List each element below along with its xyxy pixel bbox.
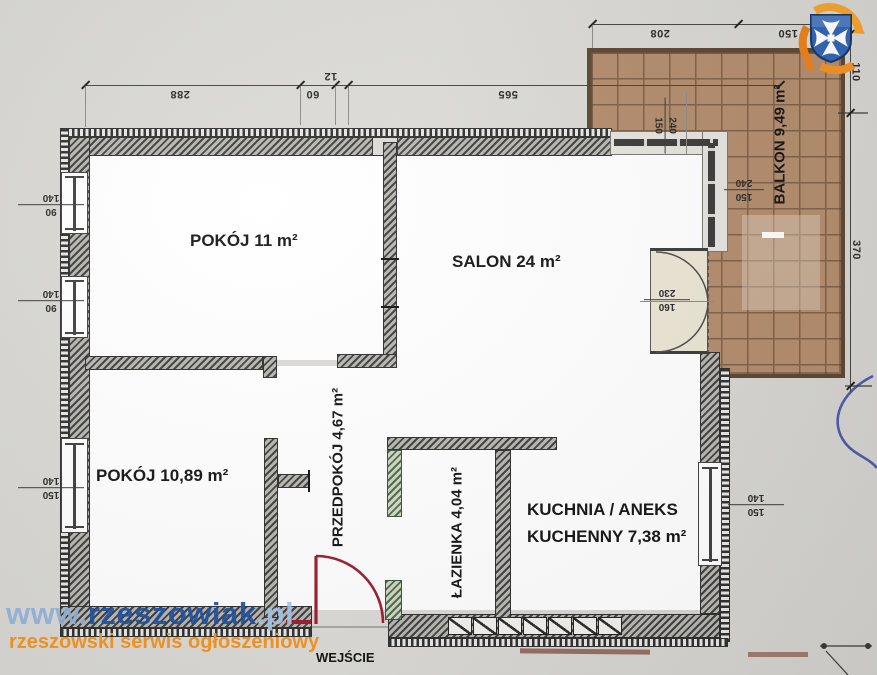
watermark-tld: .pl [257,596,295,631]
room-label-lazienka: ŁAZIENKA 4,04 m² [449,458,466,608]
dim-label-288: 288 [170,88,190,100]
window-dim-pokoj2: 150140 [18,475,84,500]
entrance-label: WEJŚCIE [316,650,375,665]
room-label-balkon: BALKON 9,49 m² [772,75,789,215]
pen-mark [838,376,877,468]
window-dim-salon-top: 240150 [652,98,677,154]
floor-plan-photo: 288 60 12 565 208 150 110 370 90140 9014… [0,0,877,675]
watermark-url: www.rzeszowiak.pl [6,596,294,632]
dim-lines-bottom-right [820,113,872,675]
room-label-przedpokoj: PRZEDPOKÓJ 4,67 m² [330,378,347,558]
rzeszowiak-logo [795,2,867,74]
balcony-door-dim: 160230 [644,287,690,312]
dim-label-370: 370 [850,240,862,260]
room-label-kuchnia: KUCHNIA / ANEKS KUCHENNY 7,38 m² [527,496,686,550]
dim-extension [85,87,86,127]
dim-label-565: 565 [498,88,518,100]
window-dim-kitchen: 150140 [728,492,784,517]
window-dim-salon-side: 150240 [724,177,764,202]
entrance-door [286,556,383,624]
watermark-name: rzeszowiak [88,596,257,631]
dim-extension [348,87,349,125]
dim-extension [335,87,336,125]
room-label-pokoj2: POKÓJ 10,89 m² [96,466,228,486]
plan-overlay [0,0,877,675]
dim-label-208: 208 [650,27,670,39]
dim-extension [592,26,593,48]
dim-line-top [85,85,780,86]
dim-label-60: 60 [306,88,319,100]
dim-line-right [850,30,851,392]
room-label-salon: SALON 24 m² [452,252,561,272]
watermark-www: www. [6,596,88,631]
dim-extension [686,92,687,154]
window-dim-pokoj1-a: 90140 [18,192,84,217]
room-label-pokoj1: POKÓJ 11 m² [190,231,298,251]
logo-swoosh-left [803,27,809,61]
watermark-subtitle: rzeszowski serwis ogłoszeniowy [9,631,319,654]
rzeszowiak-logo-graphic [795,2,867,74]
dim-label-12: 12 [324,70,337,82]
dim-extension [640,301,714,302]
logo-swoosh-bottom [821,65,853,70]
dim-extension [300,87,301,125]
window-dim-pokoj1-b: 90140 [18,288,84,313]
